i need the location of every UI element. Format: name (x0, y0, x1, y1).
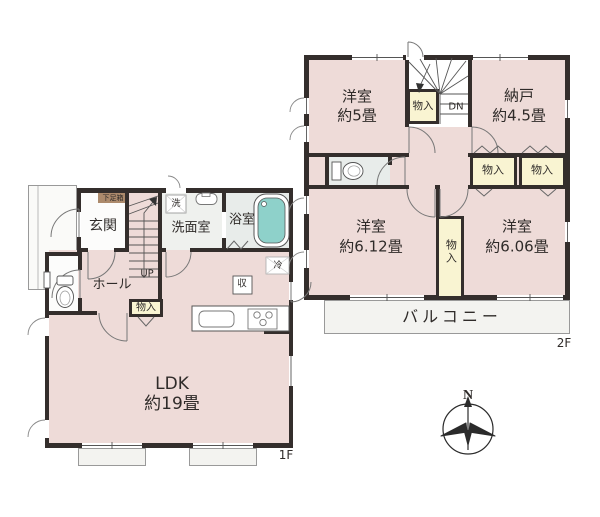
room-label-yoshitsu606-name: 洋室 (502, 218, 532, 235)
ldk-floor (49, 250, 291, 445)
terrace-left (78, 448, 146, 466)
closet-label: 物入 (531, 165, 553, 178)
room-label-nando-name: 納戸 (504, 87, 534, 104)
room-label-senmenshitsu: 洗面室 (171, 222, 210, 237)
wall (125, 193, 129, 248)
balcony-label: バルコニー (402, 308, 502, 326)
storage-label: 収 (237, 280, 247, 291)
wall (158, 193, 162, 250)
wall (304, 153, 409, 157)
stairs-up-label: UP (140, 268, 153, 280)
wall (289, 188, 293, 448)
room-label-yoshitsu5-name: 洋室 (342, 88, 372, 105)
room-label-hall: ホール (92, 279, 131, 294)
wall (304, 185, 409, 189)
wall (304, 55, 570, 60)
shoe-cabinet-label: 下足箱 (103, 194, 124, 202)
room-label-ldk-name: LDK (155, 375, 189, 395)
wall (45, 311, 97, 315)
toilet-room-2f (329, 157, 390, 185)
wall (77, 188, 81, 212)
wall (45, 443, 293, 448)
wall (264, 329, 291, 334)
floor2-label: 2F (557, 337, 572, 351)
washer-label: 洗 (171, 199, 180, 209)
closet-label: 物入 (136, 302, 156, 314)
wall (114, 248, 129, 252)
floor1-label: 1F (279, 449, 294, 463)
toilet-room-1f (49, 256, 78, 311)
terrace-right (189, 448, 257, 466)
room-label-yoshitsu5-size: 約5畳 (337, 107, 377, 124)
wall (45, 252, 49, 447)
compass-icon (441, 396, 495, 454)
closet-label: 物入 (444, 239, 457, 265)
wall (158, 250, 162, 299)
closet-label: 物入 (413, 100, 434, 112)
wall (78, 298, 82, 311)
compass-north-label: N (463, 388, 473, 404)
fridge-label: 冷 (273, 261, 282, 271)
wall (222, 193, 226, 212)
wall (388, 155, 392, 165)
wall (325, 155, 329, 187)
wall (304, 55, 309, 300)
wall (77, 248, 88, 252)
room-label-yoshitsu612-size: 約6.12畳 (339, 238, 402, 255)
room-label-ldk-size: 約19畳 (144, 395, 200, 415)
wall (77, 188, 293, 193)
floorplan-canvas: 洋室 約5畳 納戸 約4.5畳 物入 DN 物入 物入 洋室 約6.12畳 物入… (0, 0, 600, 517)
wall (190, 248, 293, 252)
wall (468, 55, 472, 127)
room-label-genkan: 玄関 (89, 218, 117, 234)
stairs-dn-label: DN (448, 101, 463, 113)
wall (436, 189, 440, 217)
wall (158, 248, 166, 252)
room-label-nando-size: 約4.5畳 (492, 107, 546, 124)
room-label-yoshitsu606-size: 約6.06畳 (485, 238, 548, 255)
closet-label: 物入 (482, 165, 504, 178)
room-label-yoshitsu612-name: 洋室 (356, 218, 386, 235)
wall (78, 256, 82, 270)
wall (45, 252, 82, 256)
room-label-yokushitsu: 浴室 (229, 214, 255, 229)
stairs-floor-1f (125, 193, 162, 250)
